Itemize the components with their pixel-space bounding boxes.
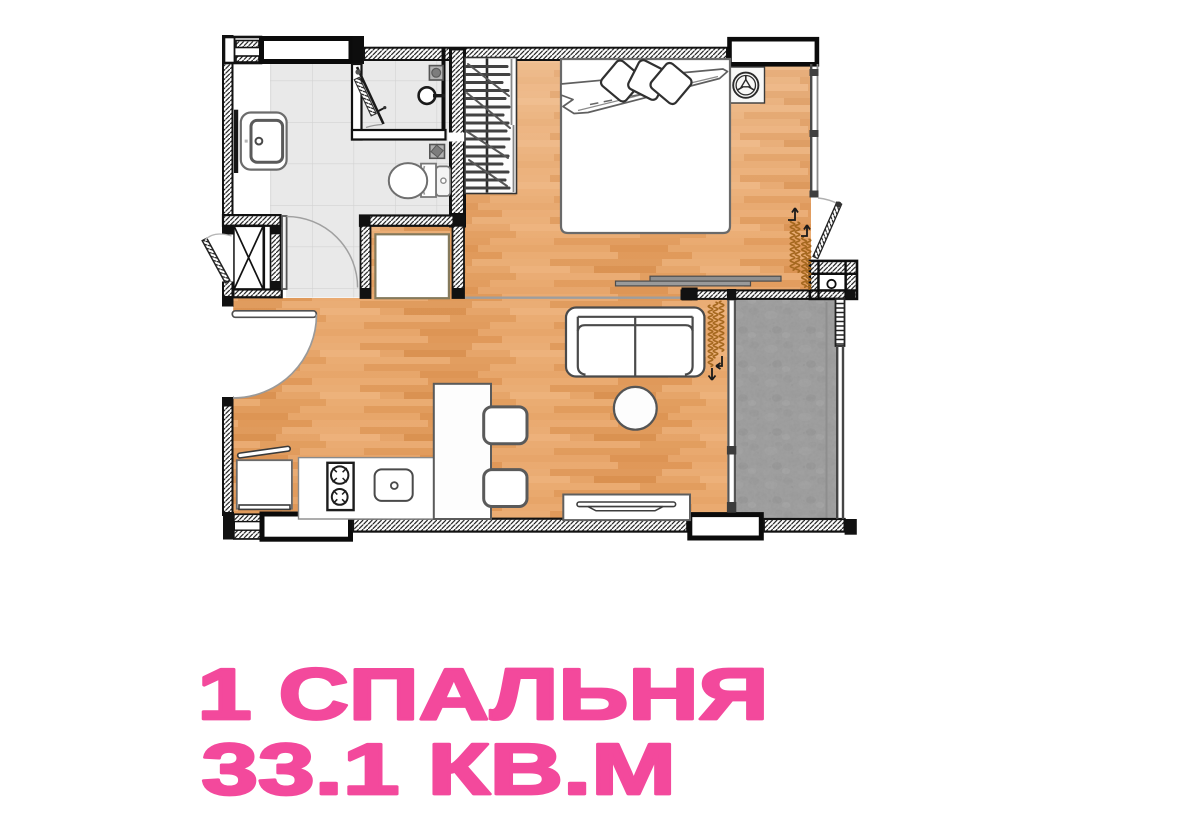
svg-text:1 СПАЛЬНЯ: 1 СПАЛЬНЯ <box>198 655 769 735</box>
svg-text:33.1 КВ.М: 33.1 КВ.М <box>202 729 677 810</box>
